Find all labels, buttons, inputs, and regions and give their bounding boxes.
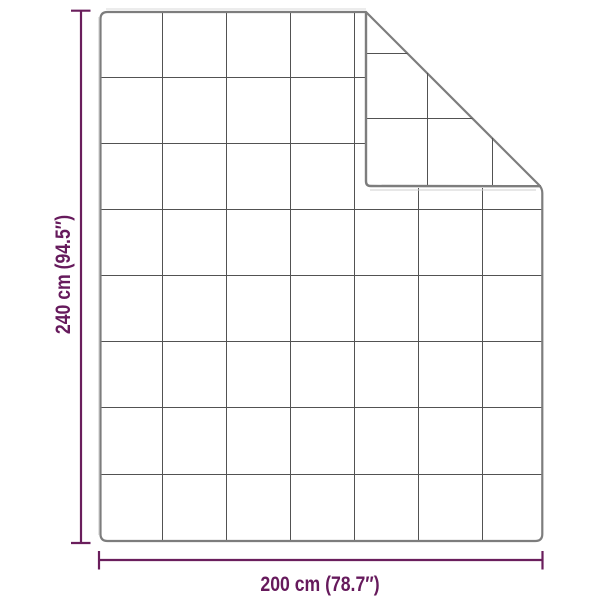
svg-text:200 cm (78.7″): 200 cm (78.7″) xyxy=(260,573,379,597)
svg-text:240 cm (94.5″): 240 cm (94.5″) xyxy=(52,215,76,334)
